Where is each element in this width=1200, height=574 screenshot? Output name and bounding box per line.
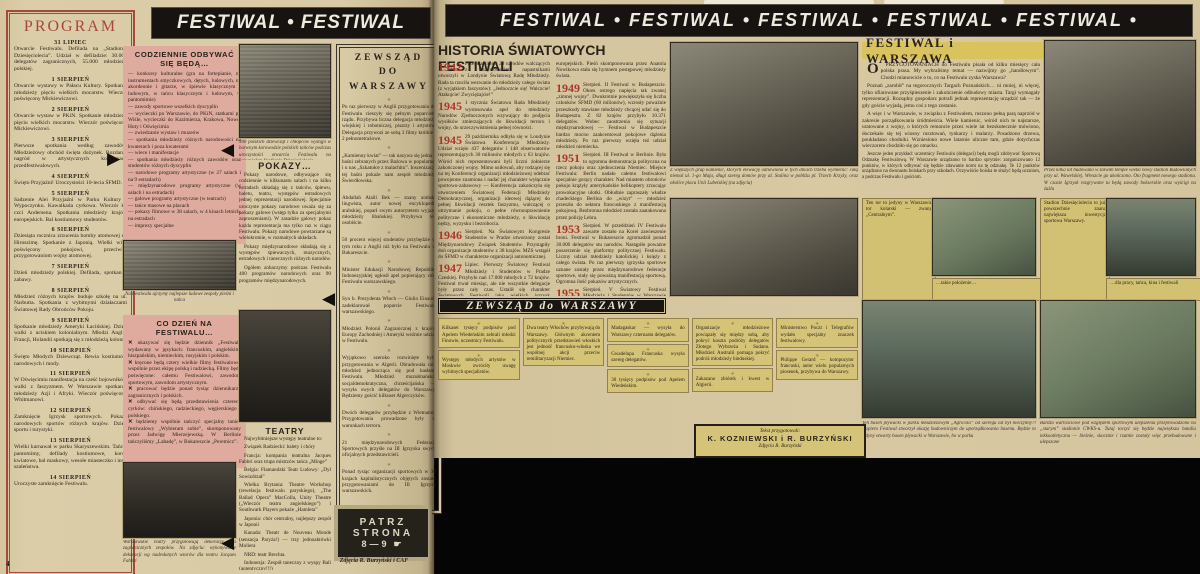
- opening-parade-photo: [239, 44, 331, 138]
- fiw-paragraph: A więc i w Warszawie, w związku z Festiw…: [862, 111, 1040, 150]
- pokazy-paragraph: Pokazy międzynarodowe składają się z wys…: [239, 244, 331, 263]
- program-entry-text: Otwarcie wystaw w PKiN. Spotkanie młodzi…: [14, 113, 127, 133]
- daily-event-item: — narodowe programy artystyczne (w 27 sa…: [128, 170, 241, 183]
- fiw-lead-paragraph: OPRZYGOTOWANIACH do Festiwalu pisała od …: [862, 62, 1040, 81]
- program-entry: 12 SIERPIEŃ Zamknięcie Igrzysk sportowyc…: [14, 408, 127, 434]
- teatry-title: TEATRY: [239, 426, 331, 436]
- stage-microphone-photo: [239, 310, 331, 422]
- zewszad2-item: Dwa teatry Włochów przybywają do Warszaw…: [523, 318, 605, 366]
- left-photo-credit: Zdjęcia R. Burzyński i CAF: [318, 558, 430, 564]
- teatry-item: Kanada: Theatr de Nouveau Monde (sensacj…: [239, 530, 331, 549]
- history-column-2: europejskich. Pieśń skomponowana przez A…: [556, 61, 666, 296]
- history-year: 1947: [438, 262, 462, 274]
- credit-photos: Zdjęcia R. Burzyński: [698, 443, 862, 449]
- patrz-strona-box: PATRZ STRONA 8—9 ☛: [334, 505, 432, 561]
- agricola-pool-photo: [862, 300, 1036, 418]
- zewszad-item: 50 procent więcej studentów przybędzie w…: [342, 230, 436, 257]
- program-entry: 9 SIERPIEŃ Spotkanie młodzieży Ameryki Ł…: [14, 318, 127, 344]
- opening-parade-caption: 500 polskich dziewcząt i chłopców wystąp…: [239, 140, 331, 160]
- patrz-line3: 8—9 ☛: [361, 539, 404, 550]
- program-entry: 13 SIERPIEŃ Wielki karnawał w parku Skar…: [14, 438, 127, 471]
- zewszad-box: ZEWSZĄD DO WARSZAWY Po raz pierwszy w An…: [336, 44, 442, 514]
- program-entry-text: Zamknięcie Igrzysk sportowych. Pokazy na…: [14, 414, 127, 434]
- fiw-small-paragraph: Jeszcze jeden przykład: uczestnicy Festi…: [862, 152, 1040, 181]
- left-page: PROGRAM 31 LIPIEC Otwarcie Festiwalu. De…: [0, 0, 434, 574]
- history-entry: 194529 października odbyła się w Londyni…: [438, 134, 550, 228]
- program-entry: 14 SIERPIEŃ Uroczyste zamknięcie Festiwa…: [14, 475, 127, 488]
- codzien-item: kręcone będą cztery wielkie filmy festiw…: [128, 360, 241, 386]
- codzien-list: ukazywać się będzie dziennik „Festiwal” …: [128, 340, 241, 446]
- zewszad-title-line3: WARSZAWY: [342, 80, 436, 94]
- folk-dance-caption: Na Festiwalu ujrzymy najlepsze ludowe ze…: [123, 292, 236, 305]
- history-year: 1949: [556, 82, 580, 94]
- zewszad2-item: Organizacje młodzieżowe powiązały się mi…: [692, 318, 774, 366]
- daily-event-item: — zawody sportowe wszelkich dyscyplin: [128, 104, 241, 111]
- agricola-pool-caption: Ten basen pływacki w parku młodzieżowym …: [862, 421, 1036, 455]
- newspaper-spread-scan: PROGRAM 31 LIPIEC Otwarcie Festiwalu. De…: [0, 0, 1200, 574]
- cwks-stadium-workers-photo: [1040, 300, 1196, 418]
- page-number: 4: [6, 560, 10, 568]
- festiwal-warszawa-article: OPRZYGOTOWANIACH do Festiwalu pisała od …: [862, 62, 1040, 196]
- arrow-left-icon: ◀: [322, 290, 335, 307]
- zewszad-item: Po raz pierwszy w Anglii przygotowania d…: [342, 97, 436, 143]
- history-entry: 1955Sierpień. V Światowy Festiwal Młodzi…: [556, 287, 666, 296]
- folk-dance-photo: [123, 240, 236, 290]
- daily-events-title: CODZIENNIE ODBYWAĆ SIĘ BĘDĄ…: [128, 50, 241, 68]
- zewszad-item: Abdallah Alaili Bek — znany arabski ling…: [342, 188, 436, 227]
- fiw-paragraph: Poznań „zarobił” na tegorocznych Targach…: [862, 83, 1040, 109]
- codzien-title: CO DZIEŃ NA FESTIWALU…: [128, 319, 241, 337]
- right-page: FESTIWAL • FESTIWAL • FESTIWAL • FESTIWA…: [434, 0, 1200, 458]
- zewszad2-item: 30 tysięcy podpisów pod Apelem Wiedeński…: [607, 369, 689, 393]
- codzien-item: odbywać się będą przedstawienia czterech…: [128, 399, 241, 419]
- zewszad2-item: Ministerstwo Poczt i Telegrafów wydało s…: [776, 318, 858, 348]
- daily-event-item: — wycieczki po Warszawie, do PKiN, statk…: [128, 111, 241, 131]
- zewszad2-col3: Madagaskar — wysyła do Warszawy czternas…: [607, 318, 689, 456]
- teatry-block: Najwybitniejsze występy teatralne to: Zw…: [239, 436, 331, 570]
- zewszad-item: „Kamienny kwiat” — tak nazywa się jedna …: [342, 145, 436, 184]
- history-year: 1951: [556, 152, 580, 164]
- park-note: …takie położenie…: [932, 278, 1044, 301]
- daily-event-item: — pokazy filmowe w 38 salach, w 4 kinach…: [128, 209, 241, 222]
- pokazy-paragraph: Pokazy narodowe, odbywające się codzienn…: [239, 172, 331, 242]
- arrow-right-icon: ◀: [107, 150, 120, 167]
- program-title: PROGRAM: [14, 18, 127, 36]
- renovated-tenements-photo: [670, 42, 858, 166]
- program-entry-text: Otwarcie wystawy w Pałacu Kultury. Spotk…: [14, 83, 127, 103]
- fiw-dropcap: O: [862, 63, 879, 76]
- festiwal-warszawa-title: FESTIWAL i WARSZAWA: [862, 42, 1044, 59]
- history-column-2-entries: 1949Sierpień. II Festiwal w Budapeszcie.…: [556, 82, 666, 296]
- program-entry: 1 SIERPIEŃ Otwarcie wystawy w Pałacu Kul…: [14, 77, 127, 103]
- zewszad2-item: Madagaskar — wysyła do Warszawy czternas…: [607, 318, 689, 342]
- teatry-item: Japonia: chór centralny, najlepszy zespó…: [239, 516, 331, 529]
- history-year: 1953: [556, 223, 580, 235]
- zewszad2-item: Występy młodych artystów w Moskwie zwróc…: [438, 350, 520, 380]
- program-entry-text: Uroczyste zamknięcie Festiwalu.: [14, 481, 127, 488]
- history-column-1: 1942Przedstawiciele 29 narodów walczącyc…: [438, 61, 550, 296]
- river-boats-note: …dla pracy, tańca, kina i festiwali: [1106, 278, 1200, 301]
- program-entry-text: Spotkanie młodzieży Ameryki Łacińskiej. …: [14, 324, 127, 344]
- zewszad2-item: Kilkaset tysięcy podpisów pod Apelem Wie…: [438, 318, 520, 348]
- arrow-left-icon: ◀: [221, 141, 234, 158]
- renovated-tenements-caption: Z większych grup kamienic, których elewa…: [670, 168, 858, 196]
- daily-event-item: — zwiedzanie wystaw i muzeów: [128, 130, 241, 137]
- pokazy-title: POKAZY…: [239, 161, 331, 171]
- river-boats-photo: [1106, 198, 1196, 276]
- patrz-line2: STRONA: [353, 528, 413, 539]
- pokazy-text: Pokazy narodowe, odbywające się codzienn…: [239, 172, 331, 307]
- history-year: 1955: [556, 287, 580, 296]
- program-entry-text: Dziesiąta rocznica zrzucenia bomby atomo…: [14, 233, 127, 260]
- daily-event-item: — imprezy specjalne: [128, 223, 241, 230]
- text-credit-box: Tekst przygotowali: K. KOZNIEWSKI i R. B…: [694, 424, 866, 458]
- patrz-pages: 8—9: [361, 539, 389, 549]
- zewszad2-header: ZEWSZĄD do WARSZAWY: [438, 298, 666, 314]
- page-fold-shadow: [428, 0, 440, 574]
- history-year: 1942: [438, 61, 462, 73]
- teatry-item: Francja: kompania teatralna Jacques Fabb…: [239, 453, 331, 466]
- zewszad2-col2: Dwa teatry Włochów przybywają do Warszaw…: [523, 318, 605, 456]
- pointing-hand-icon: ☛: [393, 539, 404, 550]
- zewszad-item: Minister Edukacji Narodowej Republiki In…: [342, 259, 436, 286]
- history-entry: 1946Sierpień. Na Światowym Kongresie Stu…: [438, 229, 550, 260]
- zewszad2-item: Gwadelupa Francuska wysyła szereg delega…: [607, 344, 689, 368]
- teatry-intro: Najwybitniejsze występy teatralne to:: [239, 436, 331, 442]
- credit-authors: K. KOZNIEWSKI i R. BURZYŃSKI: [698, 434, 862, 443]
- velodrome-photo: [670, 198, 858, 296]
- zewszad-title: ZEWSZĄD DO WARSZAWY: [342, 51, 436, 94]
- history-entry: 1942Przedstawiciele 29 narodów walczącyc…: [438, 61, 550, 98]
- program-entry-text: W Oświęcimiu manifestacja na cześć bojow…: [14, 377, 127, 404]
- daily-event-item: — konkursy kulturalne (gra na fortepiani…: [128, 71, 241, 104]
- program-entry-text: Dzień młodzieży polskiej. Defilada, spot…: [14, 270, 127, 283]
- program-entry: 2 SIERPIEŃ Otwarcie wystaw w PKiN. Spotk…: [14, 107, 127, 133]
- fiw-paragraphs: Poznań „zarobił” na tegorocznych Targach…: [862, 83, 1040, 150]
- program-entry: 6 SIERPIEŃ Dziesiąta rocznica zrzucenia …: [14, 227, 127, 260]
- teatry-list: Związek Radziecki: balety i chóryFrancja…: [239, 444, 331, 570]
- codzien-item: pracować będzie ponad tysiąc dziennikarz…: [128, 386, 241, 399]
- codzien-item: będziemy wspólnie tańczyć specjalny tani…: [128, 419, 241, 445]
- program-entry-text: Młodzież różnych krajów buduje szkołę na…: [14, 294, 127, 314]
- patrz-line1: PATRZ: [360, 517, 407, 528]
- torn-edge: [884, 0, 1004, 4]
- program-entry-text: Wielki karnawał w parku Skaryszewskim. T…: [14, 444, 127, 471]
- program-entry-text: Sadzenie Alei Przyjaźni w Parku Kultury …: [14, 197, 127, 224]
- history-text: 29 października odbyła się w Londynie Św…: [438, 134, 550, 227]
- park-photo: [932, 198, 1036, 276]
- zewszad-item: 21 międzynarodowych Federacji Sportowych…: [342, 432, 436, 459]
- teatry-item: Związek Radziecki: balety i chóry: [239, 444, 331, 450]
- left-festiwal-banner: FESTIWAL • FESTIWAL: [152, 8, 430, 38]
- arrow-left-icon: ◀: [221, 534, 234, 551]
- history-entry: 1951Sierpień. III Festiwal w Berlinie. B…: [556, 152, 666, 221]
- scenery-workshop-caption: Warszawskie teatry przygotowują dekoracj…: [123, 540, 236, 572]
- program-entry: 4 SIERPIEŃ Święto Przyjaźni! Uroczystośc…: [14, 174, 127, 187]
- teatry-item: NRD: teatr Brechta.: [239, 552, 331, 558]
- history-continuation: europejskich. Pieśń skomponowana przez A…: [556, 61, 666, 80]
- program-box: PROGRAM 31 LIPIEC Otwarcie Festiwalu. De…: [6, 10, 135, 574]
- program-entry-text: Święto Przyjaźni! Uroczystości 10-lecia …: [14, 180, 127, 187]
- patrz-strona-inner: PATRZ STRONA 8—9 ☛: [338, 509, 428, 557]
- zewszad-list: Po raz pierwszy w Anglii przygotowania d…: [342, 97, 436, 495]
- program-entry: 11 SIERPIEŃ W Oświęcimiu manifestacja na…: [14, 371, 127, 404]
- daily-event-item: — galowe programy artystyczne (w teatrac…: [128, 196, 241, 203]
- zewszad2-item: Zakazano zbiórek i kwest w Algierii.: [692, 368, 774, 392]
- history-year: 1945: [438, 134, 462, 146]
- zewszad-item: Ponad tysiąc organizacji sportowych w 30…: [342, 462, 436, 495]
- daily-event-item: — międzynarodowe programy artystyczne (w…: [128, 183, 241, 196]
- stadium-tower-caption: Przez kilka lat budowano w żółwim tempie…: [1044, 168, 1196, 202]
- history-entry: 1947Lipiec. Pierwszy Światowy Festiwal M…: [438, 262, 550, 296]
- zewszad-title-line2: DO: [342, 65, 436, 79]
- program-entry: 7 SIERPIEŃ Dzień młodzieży polskiej. Def…: [14, 264, 127, 283]
- history-entry: 19451 stycznia Światowa Rada Młodzieży w…: [438, 100, 550, 131]
- pokazy-paragraph: Ogółem zobaczymy podczas Festiwalu 400 p…: [239, 265, 331, 284]
- program-entry: 10 SIERPIEŃ Święto Młodych Dziewcząt. Re…: [14, 348, 127, 367]
- program-entries: 31 LIPIEC Otwarcie Festiwalu. Defilada n…: [14, 40, 127, 488]
- codzien-item: ukazywać się będzie dziennik „Festiwal” …: [128, 340, 241, 360]
- scenery-workshop-photo: [123, 462, 236, 538]
- program-entry-text: Otwarcie Festiwalu. Defilada na „Stadion…: [14, 46, 127, 73]
- zewszad-item: Młodzież Polonii Zagranicznej z krajów E…: [342, 318, 436, 345]
- history-entry: 1953Sierpień. W przeddzień IV Festiwalu …: [556, 223, 666, 285]
- stadium-tower-photo: [1044, 40, 1196, 166]
- zewszad-item: Dwóch delegatów przybędzie z Wietnamu. P…: [342, 403, 436, 430]
- program-entry-text: Święto Młodych Dziewcząt. Rewia kostiumó…: [14, 354, 127, 367]
- zewszad-title-line1: ZEWSZĄD: [342, 51, 436, 65]
- zewszad-item: Syn b. Prezydenta Włoch — Giulio Einaudi…: [342, 289, 436, 316]
- history-year: 1946: [438, 229, 462, 241]
- codzien-box: CO DZIEŃ NA FESTIWALU… ukazywać się będz…: [123, 315, 246, 468]
- zewszad2-col1: Kilkaset tysięcy podpisów pod Apelem Wie…: [438, 318, 520, 456]
- cwks-stadium-workers-caption: Bardzo wartościowe pod względem sportowy…: [1040, 421, 1196, 455]
- history-year: 1945: [438, 100, 462, 112]
- history-entry: 1949Sierpień. II Festiwal w Budapeszcie.…: [556, 82, 666, 151]
- stadium-x-note: Stadion Dziesięciolecia to już powszechn…: [1040, 198, 1110, 302]
- program-entry: 5 SIERPIEŃ Sadzenie Alei Przyjaźni w Par…: [14, 191, 127, 224]
- program-entry: 8 SIERPIEŃ Młodzież różnych krajów buduj…: [14, 288, 127, 314]
- teatry-item: Belgia: Flamandzki Teatr Ludowy: „Dyl So…: [239, 467, 331, 480]
- teatry-item: Wielka Brytania: Theatre Workshop (rewel…: [239, 482, 331, 514]
- zewszad-item: Wyjątkowo szeroko rozwinięte były przygo…: [342, 348, 436, 400]
- program-entry: 31 LIPIEC Otwarcie Festiwalu. Defilada n…: [14, 40, 127, 73]
- fiw-lead-text: PRZYGOTOWANIACH do Festiwalu pisała od k…: [881, 62, 1040, 81]
- zewszad2-item: Philippe Gerard — kompozytor francuski, …: [776, 350, 858, 380]
- right-festiwal-banner: FESTIWAL • FESTIWAL • FESTIWAL • FESTIWA…: [446, 5, 1192, 36]
- velodrome-note: Ten tor to jedyny w Warszawie tor kolars…: [862, 198, 936, 302]
